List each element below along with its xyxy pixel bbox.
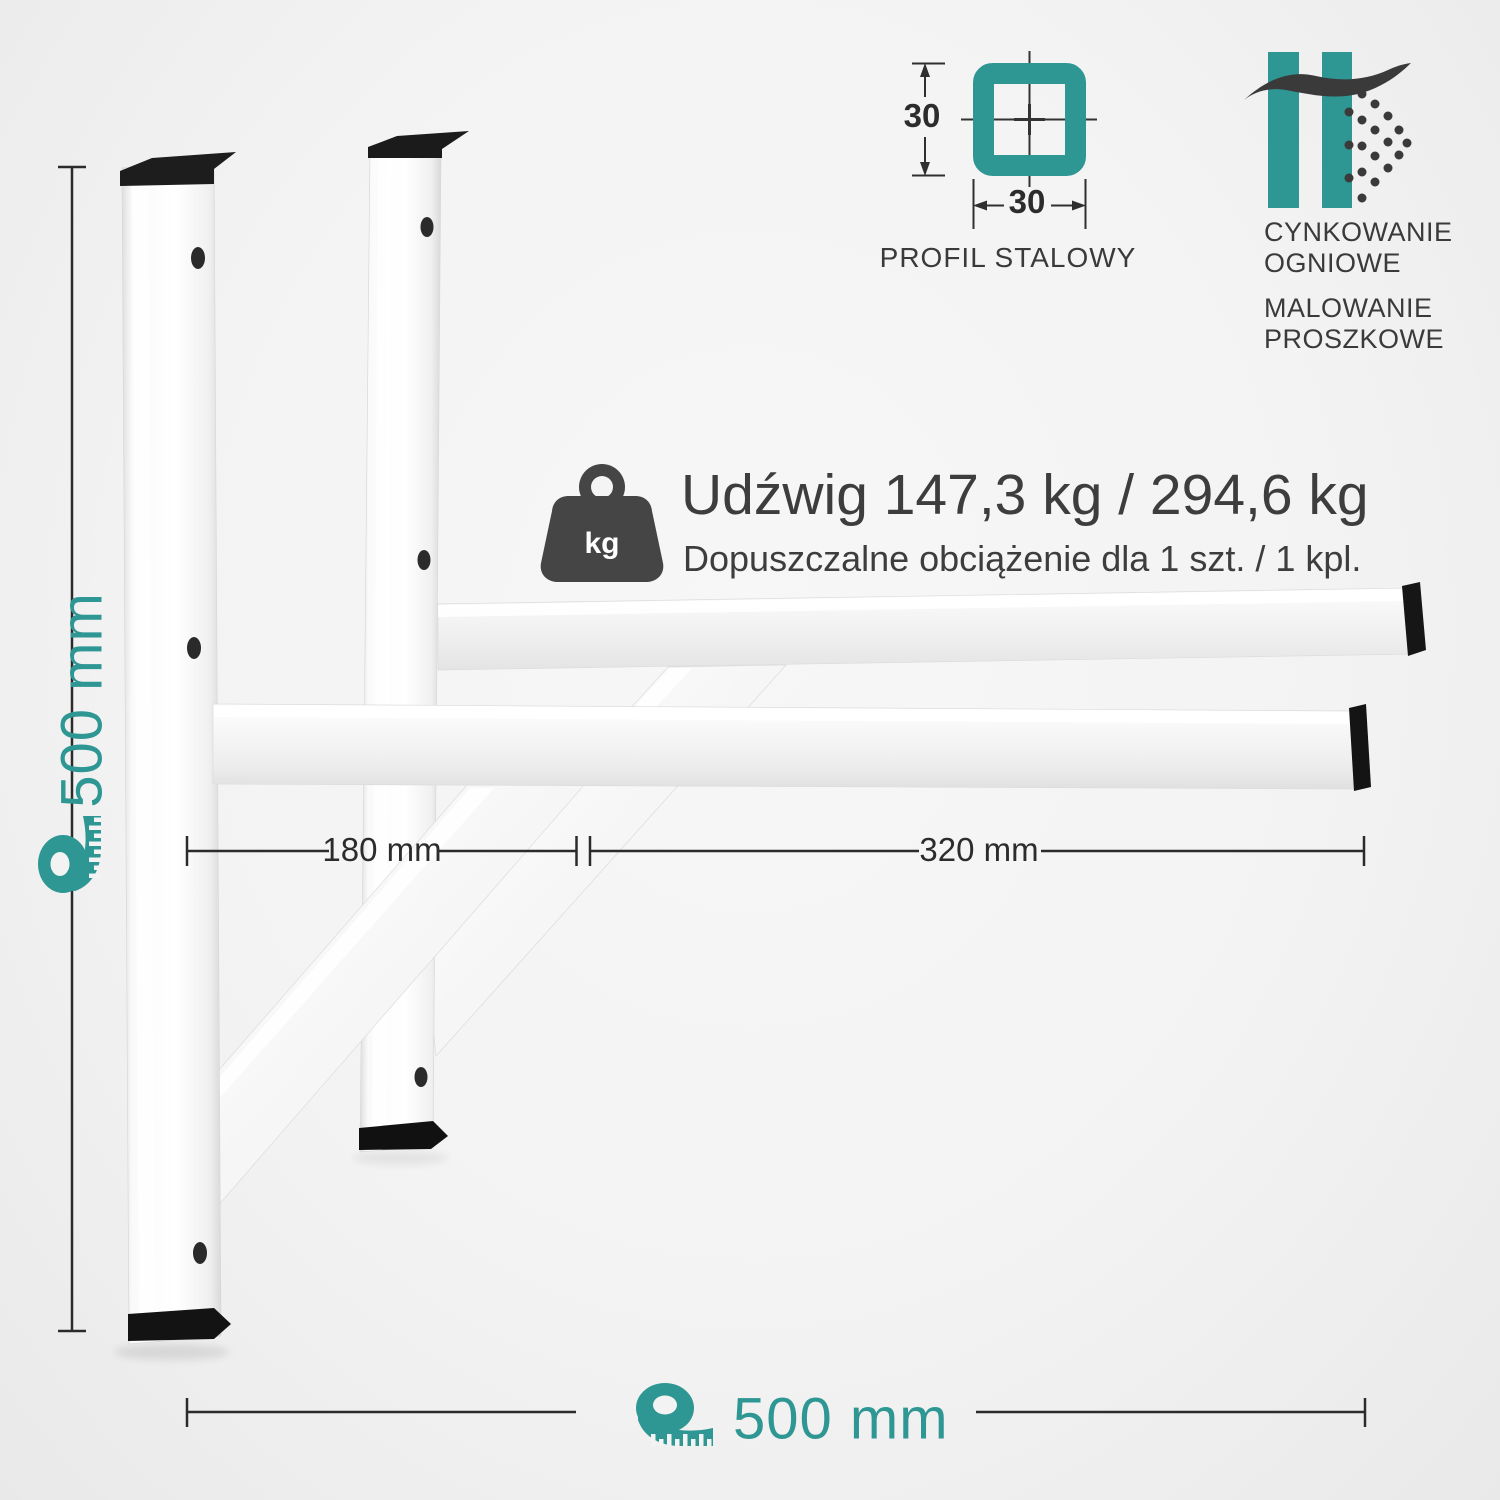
profile-size-vertical-label: 30 [904,97,941,135]
capacity-subtitle: Dopuszczalne obciążenie dla 1 szt. / 1 k… [683,538,1361,580]
front-post-bottom-cap [128,1308,231,1341]
back-bracket [359,131,1426,1152]
coating-spray-dots [1345,90,1412,203]
height-dimension-label: 500 mm [49,592,116,808]
profile-label: PROFIL STALOWY [880,242,1137,274]
screw-hole [191,247,205,269]
product-image: 500 mm 500 mm 180 mm 320 mm 30 30 PROFIL… [0,0,1500,1500]
arrow-up [920,63,930,77]
overhang-dimension-label: 320 mm [919,831,1038,869]
front-bracket [120,152,1371,1344]
screw-hole [187,637,201,659]
tape-measure-icon-horizontal [636,1383,713,1446]
arrow-right [1072,201,1086,211]
front-post-top-cap [120,152,236,186]
weight-icon-kg-label: kg [584,527,619,561]
kettlebell-weight-icon [541,464,664,582]
galvanizing-label-line1: CYNKOWANIE [1264,217,1453,248]
capacity-title: Udźwig 147,3 kg / 294,6 kg [681,462,1369,528]
powder-coating-label-line2: PROSZKOWE [1264,324,1444,355]
steel-profile-cross-section-icon [912,51,1097,229]
profile-size-horizontal-label: 30 [1009,183,1046,221]
screw-hole [415,1067,428,1087]
screw-hole [193,1242,207,1264]
width-dimension-label: 500 mm [733,1386,949,1453]
galvanizing-label-line2: OGNIOWE [1264,248,1453,279]
screw-hole [421,217,434,237]
screw-hole [418,550,431,570]
powder-coating-label-line1: MALOWANIE [1264,293,1444,324]
galvanizing-label: CYNKOWANIE OGNIOWE [1264,217,1453,279]
hot-dip-galvanizing-icon [1244,52,1412,208]
tape-measure-icon-vertical [38,816,101,893]
arrow-down [920,162,930,176]
arrow-left [973,201,987,211]
back-post-top-cap [368,131,469,158]
powder-coating-label: MALOWANIE PROSZKOWE [1264,293,1444,355]
wall-section-dimension-label: 180 mm [322,831,441,869]
